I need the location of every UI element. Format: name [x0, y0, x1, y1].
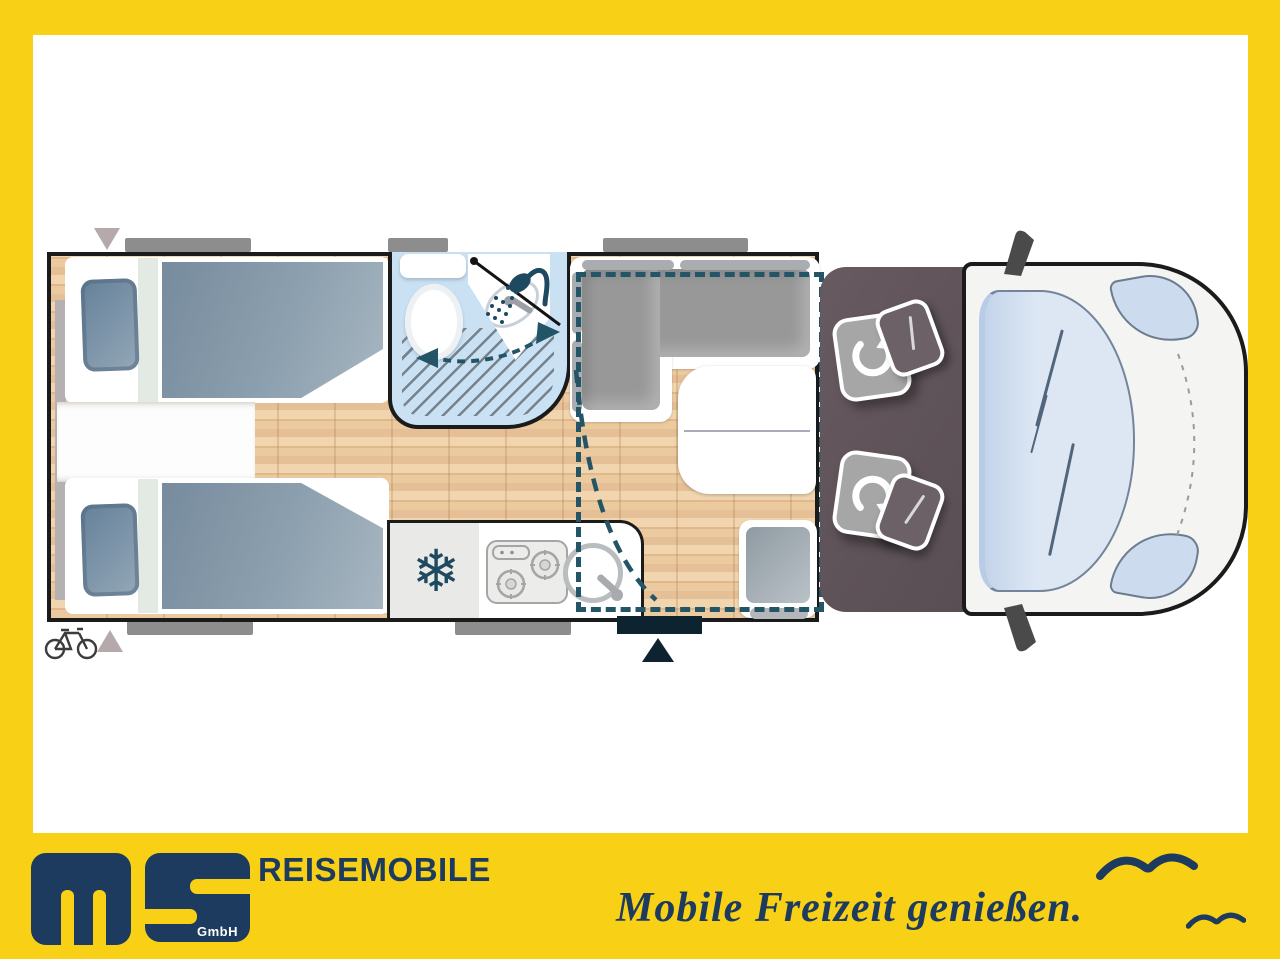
bed-pillow	[80, 503, 139, 597]
snowflake-icon: ❄	[412, 542, 461, 600]
entry-step	[617, 616, 702, 634]
bed-duvet	[158, 479, 387, 613]
roof-vent-marker	[97, 630, 123, 652]
company-name: REISEMOBILE	[258, 851, 491, 889]
roof-vent-marker	[94, 228, 120, 250]
side-mirror	[998, 604, 1040, 656]
bed-headboard	[138, 258, 158, 402]
single-bed-bottom	[65, 478, 389, 614]
window-marker	[125, 238, 251, 252]
bed-pillow	[80, 278, 139, 372]
single-bed-top	[65, 257, 389, 403]
bathroom-detail-lines	[392, 252, 567, 425]
backrest-cushion	[582, 260, 674, 270]
seagull-icon	[1186, 906, 1246, 938]
logo-suffix: GmbH	[197, 924, 238, 939]
window-marker	[388, 238, 448, 252]
hood-line	[1164, 346, 1214, 546]
windshield	[979, 290, 1135, 592]
logo-m	[31, 853, 131, 945]
backrest-cushion	[680, 260, 810, 270]
living-area: ❄	[47, 252, 819, 622]
tagline: Mobile Freizeit genießen.	[616, 884, 1083, 932]
bedside-cabinet	[57, 402, 255, 482]
swivel-wall-path	[544, 334, 684, 614]
side-mirror	[998, 228, 1038, 276]
entry-arrow-icon	[642, 638, 674, 662]
side-window	[1109, 267, 1202, 350]
fridge: ❄	[387, 520, 484, 618]
driver-cab	[820, 267, 968, 612]
bed-headboard	[138, 479, 158, 613]
vehicle-front	[962, 262, 1248, 616]
bed-duvet	[158, 258, 387, 402]
bicycle-icon	[44, 621, 98, 661]
window-marker	[603, 238, 748, 252]
seagull-icon	[1096, 846, 1198, 892]
page: ❄	[0, 0, 1280, 959]
